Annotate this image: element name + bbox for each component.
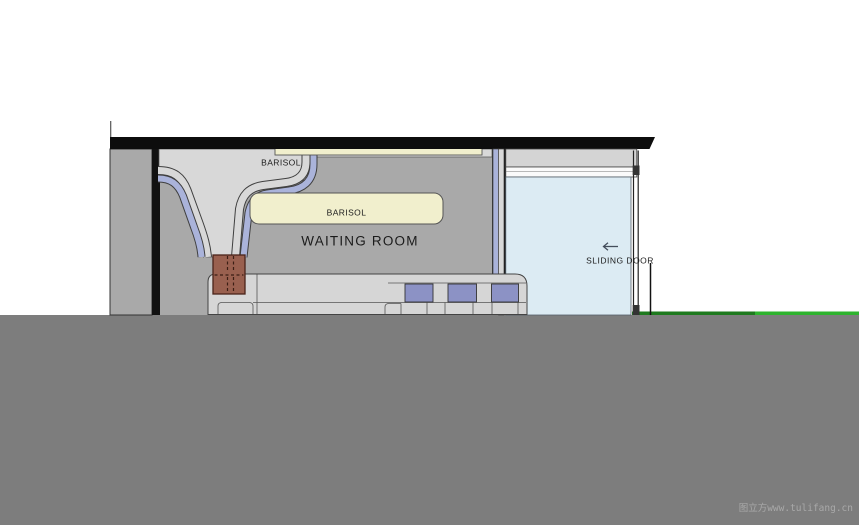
lawn-line	[755, 312, 859, 316]
planter-column	[213, 255, 245, 294]
roof-slab	[110, 137, 655, 149]
door-frame-bracket	[633, 166, 640, 176]
door-track	[506, 167, 637, 177]
bench-seat	[208, 274, 527, 315]
barisol-panel-label: BARISOL	[327, 208, 367, 218]
ground	[0, 315, 859, 525]
sliding-door-label: SLIDING DOOR	[586, 256, 654, 266]
barisol-ceiling-strip	[275, 148, 482, 155]
barisol-top-label: BARISOL	[261, 158, 301, 168]
door-frame-bracket	[633, 305, 640, 315]
left-wall-column	[110, 149, 152, 315]
seat-cushion	[492, 284, 519, 302]
section-drawing-canvas: BARISOL BARISOL WAITING ROOM SLIDING DOO…	[0, 0, 859, 525]
door-transom	[506, 149, 637, 167]
watermark: 图立方www.tulifang.cn	[739, 502, 853, 514]
seat-cushion	[405, 284, 433, 302]
seat-cushion	[448, 284, 477, 302]
room-title: WAITING ROOM	[301, 234, 418, 249]
